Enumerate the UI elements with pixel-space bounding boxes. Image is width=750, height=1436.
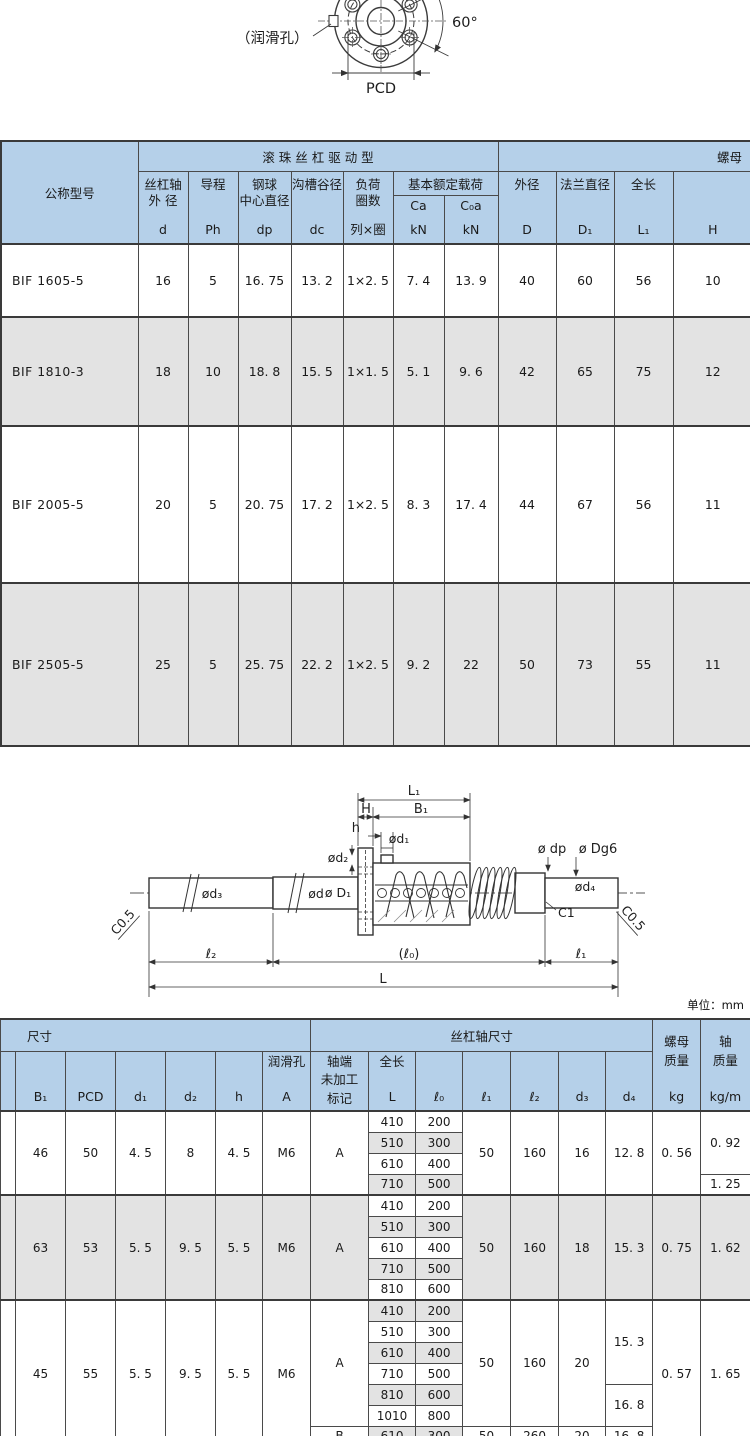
- dim-label-dp: ø dp: [538, 842, 567, 857]
- spec-cell: 5. 1: [393, 317, 444, 426]
- length-l0-cell: 500: [416, 1258, 463, 1279]
- col-header-total-length: 全长 L: [369, 1051, 416, 1111]
- spec-cell: 20. 75: [238, 426, 291, 583]
- length-l0-cell: 600: [416, 1384, 463, 1405]
- d4-cell: 16. 8: [606, 1426, 653, 1436]
- h-cell: 4. 5: [216, 1111, 263, 1195]
- spec-cell: 17. 2: [291, 426, 343, 583]
- col-header-b1: B₁: [16, 1051, 66, 1111]
- spec-cell: 22: [444, 583, 498, 746]
- length-L-cell: 810: [369, 1279, 416, 1300]
- d3-cell: 16: [559, 1111, 606, 1195]
- dim-label-Dg6: ø Dg6: [579, 842, 618, 857]
- l1-cell: 50: [463, 1111, 511, 1195]
- spec-row: BIF 2005-520520. 7517. 21×2. 58. 317. 44…: [1, 426, 750, 583]
- d1-cell: 4. 5: [116, 1111, 166, 1195]
- shaft-mass-cell: 1. 65: [701, 1300, 750, 1436]
- col-header-nut-mass: 螺母质量 kg: [653, 1019, 701, 1111]
- col-header-load-circuits: 负荷圈数 列×圈: [343, 171, 393, 244]
- spec-cell: 17. 4: [444, 426, 498, 583]
- spec-cell: 12: [673, 317, 750, 426]
- col-header-h: H: [673, 171, 750, 244]
- d4-cell: 15. 3: [606, 1300, 653, 1384]
- shaft-end-mark-cell: A: [311, 1195, 369, 1300]
- length-L-cell: 710: [369, 1363, 416, 1384]
- col-header-shaft-end-mark: 轴端未加工 标记: [311, 1051, 369, 1111]
- dimension-row: 63535. 59. 55. 5M6A410200501601815. 30. …: [1, 1195, 750, 1216]
- shaft-end-mark-cell: A: [311, 1300, 369, 1426]
- h-cell: 5. 5: [216, 1300, 263, 1436]
- length-l0-cell: 200: [416, 1111, 463, 1132]
- shaft-mass-cell: 1. 25: [701, 1174, 750, 1195]
- d2-cell: 9. 5: [166, 1195, 216, 1300]
- col-header-l1: ℓ₁: [463, 1051, 511, 1111]
- spec-cell: 55: [614, 583, 673, 746]
- catalog-page: （润滑孔） 60° PCD 公称型号 滚 珠 丝 杠 驱 动 型 螺母 丝杠轴外…: [0, 0, 750, 1436]
- dim-label-d4: ød₄: [575, 879, 596, 894]
- spec-cell: 5: [188, 244, 238, 317]
- l2-cell: 160: [511, 1300, 559, 1426]
- spec-cell: 16: [138, 244, 188, 317]
- b1-cell: 46: [16, 1111, 66, 1195]
- length-l0-cell: 300: [416, 1426, 463, 1436]
- spec-cell: 10: [188, 317, 238, 426]
- col-header-od: 外径 D: [498, 171, 556, 244]
- spec-cell: 20: [138, 426, 188, 583]
- spec-cell: 44: [498, 426, 556, 583]
- lube-thread-cell: M6: [263, 1300, 311, 1436]
- group-header-dimensions: 尺寸: [1, 1019, 311, 1051]
- l1-cell: 50: [463, 1195, 511, 1300]
- model-cell: BIF 1605-5: [1, 244, 138, 317]
- length-L-cell: 710: [369, 1258, 416, 1279]
- length-L-cell: 410: [369, 1300, 416, 1321]
- col-header-shaft-od: 丝杠轴外 径 d: [138, 171, 188, 244]
- length-l0-cell: 800: [416, 1405, 463, 1426]
- spec-cell: 1×2. 5: [343, 244, 393, 317]
- l2-cell: 160: [511, 1111, 559, 1195]
- dim-label-D1: ø D₁: [325, 885, 351, 900]
- spec-cell: 9. 2: [393, 583, 444, 746]
- pcd-cell: 50: [66, 1111, 116, 1195]
- col-header-lube-hole: 润滑孔 A: [263, 1051, 311, 1111]
- spec-cell: 25: [138, 583, 188, 746]
- d4-cell: 15. 3: [606, 1195, 653, 1300]
- length-L-cell: 510: [369, 1321, 416, 1342]
- spec-cell: 73: [556, 583, 614, 746]
- spec-cell: 18: [138, 317, 188, 426]
- col-header-d1: d₁: [116, 1051, 166, 1111]
- spec-cell: 1×1. 5: [343, 317, 393, 426]
- group-header-nut: 螺母: [498, 141, 750, 171]
- dim-label-l2: ℓ₂: [205, 947, 217, 962]
- spec-cell: 1×2. 5: [343, 583, 393, 746]
- length-L-cell: 610: [369, 1153, 416, 1174]
- length-l0-cell: 200: [416, 1300, 463, 1321]
- length-l0-cell: 300: [416, 1216, 463, 1237]
- dim-label-H: H: [361, 802, 371, 817]
- spec-cell: 40: [498, 244, 556, 317]
- shaft-end-mark-cell: B: [311, 1426, 369, 1436]
- spec-cell: 9. 6: [444, 317, 498, 426]
- nut-mass-cell: 0. 75: [653, 1195, 701, 1300]
- dim-label-L1: L₁: [408, 784, 420, 799]
- model-cell: BIF 2505-5: [1, 583, 138, 746]
- svg-text:C0.5: C0.5: [618, 902, 648, 933]
- group-header-drive: 滚 珠 丝 杠 驱 动 型: [138, 141, 498, 171]
- length-l0-cell: 400: [416, 1153, 463, 1174]
- spec-cell: 56: [614, 426, 673, 583]
- spec-cell: 13. 2: [291, 244, 343, 317]
- col-header-d4: d₄: [606, 1051, 653, 1111]
- model-cell: BIF 1810-3: [1, 317, 138, 426]
- d2-cell: 9. 5: [166, 1300, 216, 1436]
- spec-cell: 8. 3: [393, 426, 444, 583]
- l1-cell: 50: [463, 1426, 511, 1436]
- dim-label-B1: B₁: [414, 802, 428, 817]
- lube-hole-label: （润滑孔）: [236, 30, 309, 47]
- angle-dimension: [398, 0, 448, 56]
- dim-label-d3: ød₃: [202, 886, 223, 901]
- shaft-mass-cell: 0. 92: [701, 1111, 750, 1174]
- spec-cell: 1×2. 5: [343, 426, 393, 583]
- length-L-cell: 1010: [369, 1405, 416, 1426]
- l2-cell: 160: [511, 1195, 559, 1300]
- stub-cell: [1, 1300, 16, 1436]
- dim-label-l1: ℓ₁: [575, 947, 587, 962]
- dimension-row: 46504. 584. 5M6A410200501601612. 80. 560…: [1, 1111, 750, 1132]
- pcd-cell: 53: [66, 1195, 116, 1300]
- flange-front-drawing: （润滑孔） 60° PCD: [0, 0, 750, 105]
- length-l0-cell: 400: [416, 1237, 463, 1258]
- spec-table: 公称型号 滚 珠 丝 杠 驱 动 型 螺母 丝杠轴外 径 d 导程 Ph 钢球中…: [0, 140, 750, 747]
- nut-mass-cell: 0. 56: [653, 1111, 701, 1195]
- d3-cell: 20: [559, 1300, 606, 1426]
- col-header-model: 公称型号: [1, 141, 138, 244]
- spec-cell: 5: [188, 583, 238, 746]
- dim-label-d2: ød₂: [328, 850, 349, 865]
- spec-cell: 10: [673, 244, 750, 317]
- spec-cell: 13. 9: [444, 244, 498, 317]
- col-header-ca: Ca kN: [393, 195, 444, 244]
- length-L-cell: 410: [369, 1195, 416, 1216]
- d2-cell: 8: [166, 1111, 216, 1195]
- shaft-end-mark-cell: A: [311, 1111, 369, 1195]
- col-header-ball-center: 钢球中心直径 dp: [238, 171, 291, 244]
- b1-cell: 63: [16, 1195, 66, 1300]
- stub-cell: [1, 1195, 16, 1300]
- d3-cell: 20: [559, 1426, 606, 1436]
- spec-row: BIF 2505-525525. 7522. 21×2. 59. 2225073…: [1, 583, 750, 746]
- nut-mass-cell: 0. 57: [653, 1300, 701, 1436]
- d1-cell: 5. 5: [116, 1195, 166, 1300]
- col-header-rated-load: 基本额定载荷: [393, 171, 498, 195]
- l1-cell: 50: [463, 1300, 511, 1426]
- length-l0-cell: 400: [416, 1342, 463, 1363]
- chamfer-label-c05-right: C0.5: [616, 901, 649, 935]
- length-l0-cell: 500: [416, 1174, 463, 1195]
- spec-row: BIF 1810-3181018. 815. 51×1. 55. 19. 642…: [1, 317, 750, 426]
- pcd-label: PCD: [366, 81, 396, 97]
- spec-cell: 11: [673, 426, 750, 583]
- group-header-shaft-dimensions: 丝杠轴尺寸: [311, 1019, 653, 1051]
- model-cell: BIF 2005-5: [1, 426, 138, 583]
- d4-cell: 16. 8: [606, 1384, 653, 1426]
- dim-label-d: ød: [308, 886, 324, 901]
- unit-label: 单位：mm: [687, 997, 744, 1013]
- col-header-length: 全长 L₁: [614, 171, 673, 244]
- col-header-flange-dia: 法兰直径 D₁: [556, 171, 614, 244]
- spec-cell: 56: [614, 244, 673, 317]
- chamfer-label-c1: C1: [558, 905, 575, 920]
- spec-cell: 22. 2: [291, 583, 343, 746]
- col-header-d3: d₃: [559, 1051, 606, 1111]
- svg-text:C0.5: C0.5: [108, 906, 138, 937]
- col-header-h: h: [216, 1051, 263, 1111]
- lube-thread-cell: M6: [263, 1111, 311, 1195]
- col-header-pcd: PCD: [66, 1051, 116, 1111]
- col-header-c0a: C₀a kN: [444, 195, 498, 244]
- length-l0-cell: 300: [416, 1132, 463, 1153]
- spec-cell: 18. 8: [238, 317, 291, 426]
- spec-cell: 50: [498, 583, 556, 746]
- length-L-cell: 610: [369, 1342, 416, 1363]
- d4-cell: 12. 8: [606, 1111, 653, 1195]
- spec-cell: 15. 5: [291, 317, 343, 426]
- col-header-shaft-mass: 轴质量 kg/m: [701, 1019, 750, 1111]
- spec-cell: 67: [556, 426, 614, 583]
- spec-cell: 60: [556, 244, 614, 317]
- dim-label-h: h: [352, 821, 360, 836]
- length-L-cell: 710: [369, 1174, 416, 1195]
- col-header-l0: ℓ₀: [416, 1051, 463, 1111]
- col-header-stub: [1, 1051, 16, 1111]
- length-L-cell: 810: [369, 1384, 416, 1405]
- b1-cell: 45: [16, 1300, 66, 1436]
- length-l0-cell: 300: [416, 1321, 463, 1342]
- pcd-cell: 55: [66, 1300, 116, 1436]
- lube-thread-cell: M6: [263, 1195, 311, 1300]
- dimension-row: 45555. 59. 55. 5M6A410200501602015. 30. …: [1, 1300, 750, 1321]
- ballscrew-side-drawing: L₁ H B₁ h ød₁ ød₂ ø dp ø Dg6 ød₃ ød ø D₁…: [0, 775, 750, 1010]
- angle-label: 60°: [452, 15, 478, 31]
- length-l0-cell: 600: [416, 1279, 463, 1300]
- length-L-cell: 510: [369, 1132, 416, 1153]
- l2-cell: 260: [511, 1426, 559, 1436]
- spec-cell: 65: [556, 317, 614, 426]
- spec-cell: 75: [614, 317, 673, 426]
- d1-cell: 5. 5: [116, 1300, 166, 1436]
- spec-row: BIF 1605-516516. 7513. 21×2. 57. 413. 94…: [1, 244, 750, 317]
- shaft-mass-cell: 1. 62: [701, 1195, 750, 1300]
- dim-label-d1: ød₁: [389, 831, 410, 846]
- stub-cell: [1, 1111, 16, 1195]
- col-header-d2: d₂: [166, 1051, 216, 1111]
- col-header-groove: 沟槽谷径 dc: [291, 171, 343, 244]
- lube-leader-line: [313, 24, 331, 36]
- spec-cell: 25. 75: [238, 583, 291, 746]
- spec-cell: 7. 4: [393, 244, 444, 317]
- spec-cell: 16. 75: [238, 244, 291, 317]
- spec-cell: 42: [498, 317, 556, 426]
- dim-label-L: L: [379, 972, 387, 987]
- chamfer-label-c05-left: C0.5: [106, 905, 139, 939]
- col-header-l2: ℓ₂: [511, 1051, 559, 1111]
- h-cell: 5. 5: [216, 1195, 263, 1300]
- dim-label-l0: (ℓ₀): [399, 947, 420, 962]
- length-L-cell: 410: [369, 1111, 416, 1132]
- col-header-lead: 导程 Ph: [188, 171, 238, 244]
- length-L-cell: 610: [369, 1237, 416, 1258]
- length-L-cell: 510: [369, 1216, 416, 1237]
- spec-cell: 11: [673, 583, 750, 746]
- length-L-cell: 610: [369, 1426, 416, 1436]
- d3-cell: 18: [559, 1195, 606, 1300]
- spec-cell: 5: [188, 426, 238, 583]
- length-l0-cell: 200: [416, 1195, 463, 1216]
- length-l0-cell: 500: [416, 1363, 463, 1384]
- dimension-table: 尺寸 丝杠轴尺寸 螺母质量 kg 轴质量 kg/m B₁ PCD d₁: [0, 1018, 750, 1436]
